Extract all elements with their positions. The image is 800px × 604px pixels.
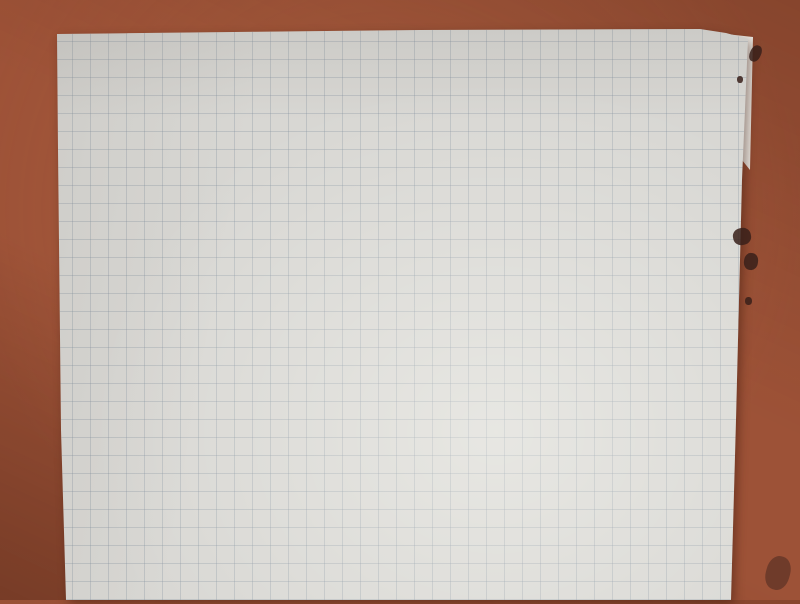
photo-of-schematic: 400V 0 R 1 Geiger Müller trubice P/2 xyxy=(0,0,800,600)
table-mark xyxy=(737,76,743,83)
graph-paper xyxy=(0,0,800,600)
paper-shadow-wrap xyxy=(0,0,800,600)
table-mark xyxy=(745,297,752,305)
